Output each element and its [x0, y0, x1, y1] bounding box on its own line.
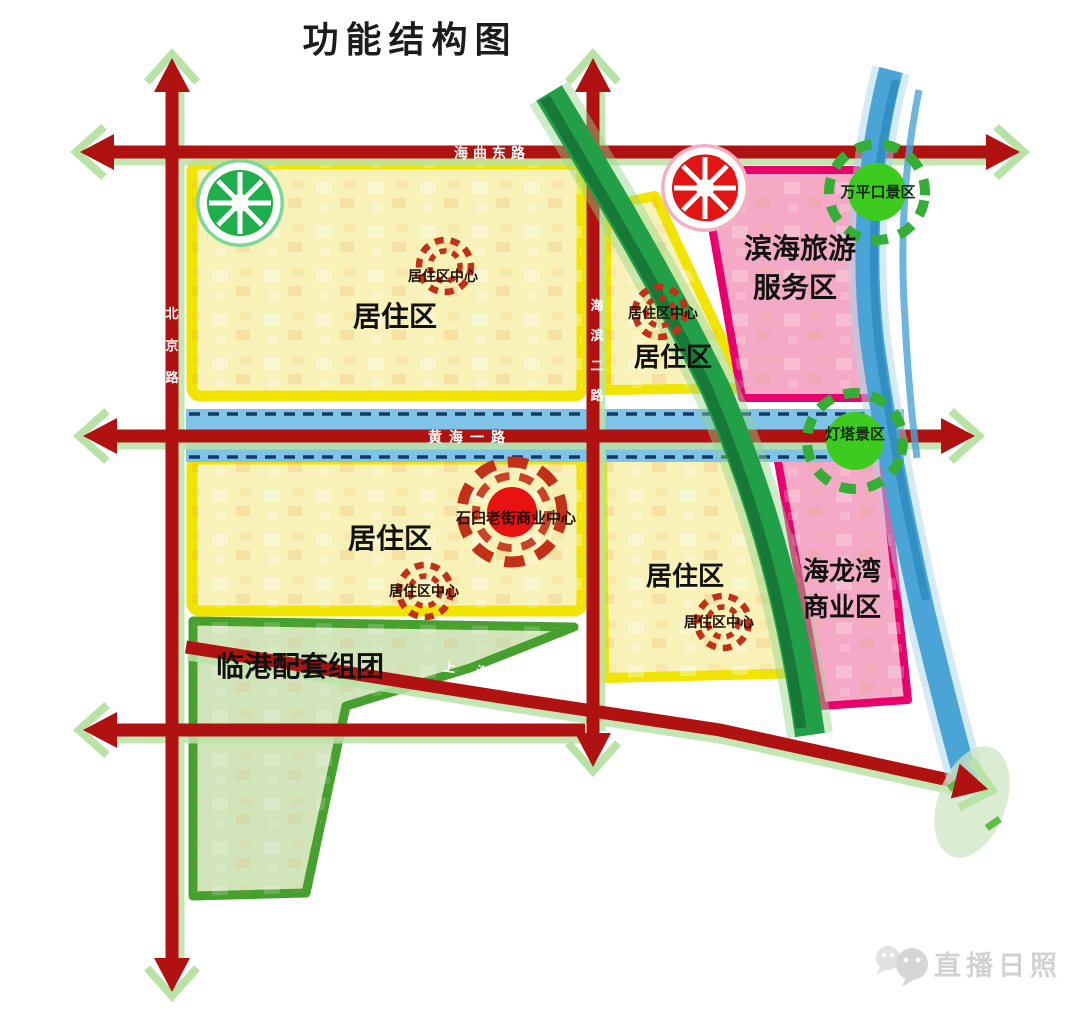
residential-center-ne-label: 居住区中心	[628, 305, 698, 322]
residential-center-sw-label: 居住区中心	[389, 583, 459, 600]
haibin-road-char: 二	[590, 359, 603, 374]
residential-nw-label: 居住区	[353, 300, 437, 333]
wanpingkou-label: 万平口景区	[839, 183, 915, 201]
haiqu-east-road-label: 海曲东路	[454, 145, 530, 162]
huanghai-first-road-label: 黄海一路	[428, 429, 512, 446]
green-wheel-icon	[198, 161, 282, 245]
beijing-road-label: 北 京 路	[165, 307, 179, 386]
shanghai-road-char: 海	[475, 664, 490, 682]
shijiu-commercial-center-label: 石臼老街商业中心	[455, 509, 576, 527]
page-title: 功能结构图	[302, 20, 517, 61]
watermark-label: 直播日照	[934, 951, 1062, 982]
residential-ne-label: 居住区	[634, 342, 712, 373]
haibin-road-char: 海	[590, 298, 603, 314]
haibin-road-char: 滨	[590, 328, 603, 344]
haibin-road-char: 路	[590, 388, 604, 404]
residential-center-nw-label: 居住区中心	[408, 268, 478, 285]
lingang-label: 临港配套组团	[216, 650, 384, 683]
shanghai-road-char: 上	[442, 660, 457, 677]
red-wheel-icon	[663, 146, 747, 230]
hailongwan-line1: 海龙湾	[803, 556, 881, 587]
functional-structure-map: 海曲东路 黄海一路 上 海 路 北 京 路 海 滨 二 路 万平口景区 灯塔景区…	[0, 0, 1080, 1019]
binhai-tourism-line1: 滨海旅游	[744, 232, 856, 265]
beijing-road-char: 京	[165, 338, 178, 354]
residential-sw-label: 居住区	[348, 522, 432, 555]
beijing-road-char: 路	[165, 370, 179, 386]
beijing-road-char: 北	[165, 307, 178, 322]
hailongwan-line2: 商业区	[803, 592, 881, 623]
binhai-tourism-line2: 服务区	[753, 271, 837, 304]
residential-center-se-label: 居住区中心	[684, 614, 754, 631]
lighthouse-label: 灯塔景区	[825, 425, 885, 443]
residential-se-label: 居住区	[646, 561, 724, 592]
